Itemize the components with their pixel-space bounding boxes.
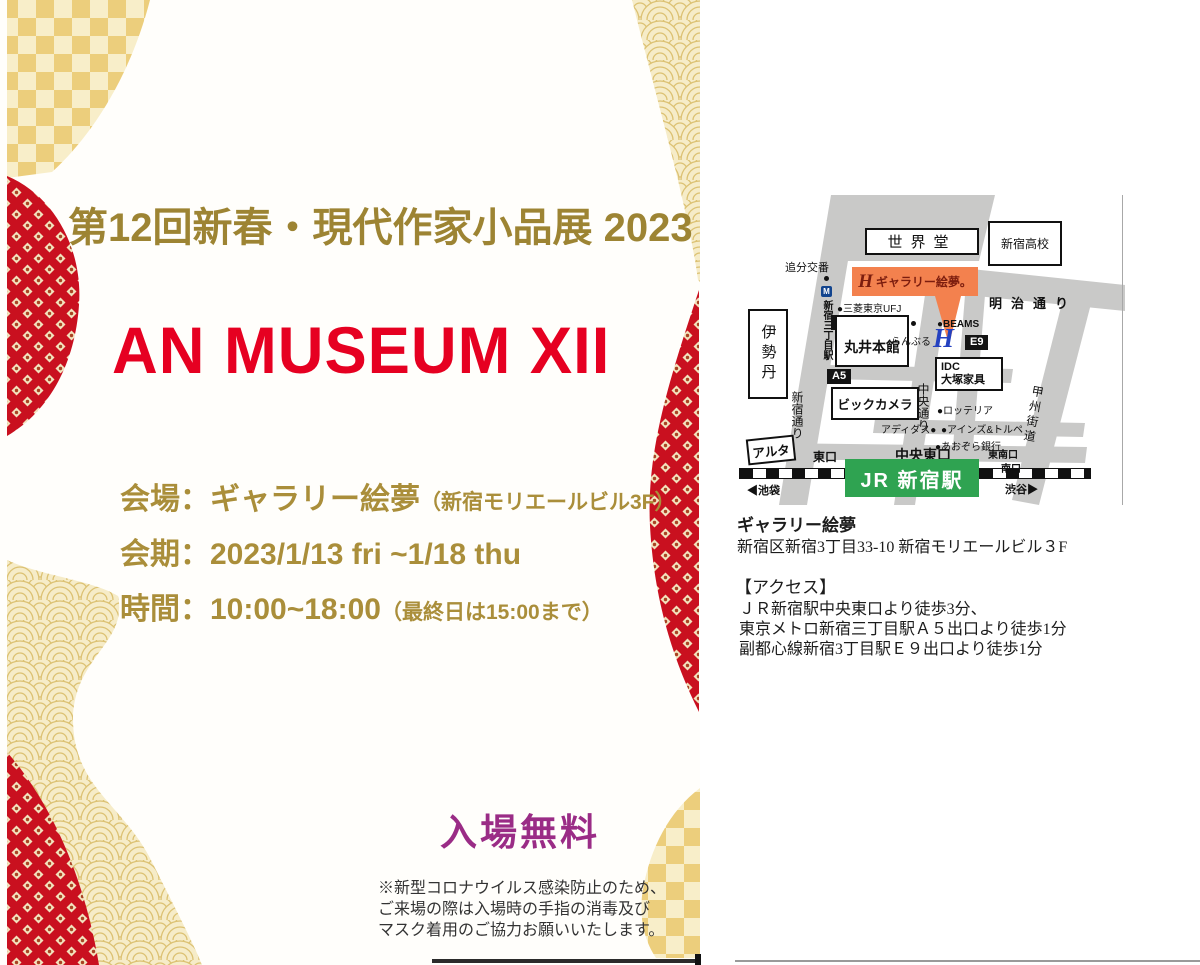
scan-edge-line <box>432 959 700 963</box>
railway-track-east <box>979 468 1091 479</box>
adidas-label: アディダス● <box>881 421 936 436</box>
main-title: AN MUSEUM XII <box>112 312 610 388</box>
ainz-tulpe-label: ●アインズ&トルペ <box>941 421 1023 436</box>
access-info-card: 世界堂 新宿高校 追分交番 H ギャラリー絵夢。 M 新宿三丁目駅 ●三菱東京U… <box>735 0 1200 965</box>
covid-notice: ※新型コロナウイルス感染防止のため、 ご来場の際は入場時の手指の消毒及び マスク… <box>378 878 666 941</box>
ranburu-dot <box>911 321 916 326</box>
building-shinjuku-highschool: 新宿高校 <box>988 221 1062 266</box>
venue-line: 会場：ギャラリー絵夢（新宿モリエールビル3F） <box>120 474 676 518</box>
railway-track-west <box>739 468 845 479</box>
hours-note: （最終日は15:00まで） <box>381 601 603 624</box>
idc-line2: 大塚家具 <box>941 374 985 387</box>
building-isetan: 伊勢丹 <box>748 309 788 399</box>
gallery-emu-map-logo: H <box>933 325 954 352</box>
to-shibuya-label: 渋谷▶ <box>1005 481 1038 497</box>
free-admission-label: 入場無料 <box>440 802 600 856</box>
area-map: 世界堂 新宿高校 追分交番 H ギャラリー絵夢。 M 新宿三丁目駅 ●三菱東京U… <box>745 195 1125 505</box>
building-sekaido: 世界堂 <box>865 228 979 255</box>
south-exit-label: 南口 <box>1001 460 1021 475</box>
exhibition-title: 第12回新春・現代作家小品展 2023 <box>68 195 693 253</box>
covid-notice-line1: ※新型コロナウイルス感染防止のため、 <box>378 878 666 899</box>
jr-shinjuku-station: JR 新宿駅 <box>845 459 979 497</box>
shinjuku-dori-label: 新宿通り <box>789 391 806 439</box>
scanned-flyer-page: 第12回新春・現代作家小品展 2023 AN MUSEUM XII 会場：ギャラ… <box>0 0 1200 965</box>
east-exit-label: 東口 <box>813 448 837 465</box>
oiwake-koban-dot <box>824 276 829 281</box>
gallery-h-logo: H <box>858 272 873 291</box>
building-idc-otsuka: IDC 大塚家具 <box>935 357 1003 391</box>
to-ikebukuro-label: ◀池袋 <box>747 482 780 498</box>
building-alta: アルタ <box>746 435 796 466</box>
dates-line: 会期：2023/1/13 fri ~1/18 thu <box>120 529 521 573</box>
metro-icon: M <box>821 286 832 297</box>
mitsubishi-ufj-label: ●三菱東京UFJ <box>837 300 901 315</box>
idc-line1: IDC <box>941 361 960 374</box>
gallery-address: 新宿区新宿3丁目33-10 新宿モリエールビル３F <box>737 533 1067 557</box>
southeast-exit-label: 東南口 <box>988 446 1018 461</box>
gallery-emu-banner: H ギャラリー絵夢。 <box>852 267 978 296</box>
venue-note: （新宿モリエールビル3F） <box>420 491 676 514</box>
covid-notice-line2: ご来場の際は入場時の手指の消毒及び <box>378 899 666 920</box>
venue-label: 会場：ギャラリー絵夢 <box>120 483 420 516</box>
meiji-dori-label: 明治通り <box>989 293 1077 312</box>
building-bic-camera: ビックカメラ <box>831 387 919 420</box>
hours-value: 時間：10:00~18:00 <box>120 593 381 626</box>
access-line3: 副都心線新宿3丁目駅Ｅ９出口より徒歩1分 <box>739 635 1043 659</box>
map-edge-line <box>1122 195 1123 505</box>
ranburu-label: らんぶる <box>891 333 931 348</box>
scan-edge-tick <box>695 954 701 965</box>
exit-e9-badge: E9 <box>965 335 988 350</box>
metro-shinjuku3chome-station-label: 新宿三丁目駅 <box>819 300 834 360</box>
covid-notice-line3: マスク着用のご協力お願いいたします。 <box>378 920 666 941</box>
gallery-banner-text: ギャラリー絵夢。 <box>876 273 972 290</box>
scan-edge-line-right <box>735 960 1200 962</box>
oiwake-koban-label: 追分交番 <box>785 259 829 275</box>
exhibition-flyer: 第12回新春・現代作家小品展 2023 AN MUSEUM XII 会場：ギャラ… <box>0 0 700 965</box>
lotteria-label: ●ロッテリア <box>937 402 993 417</box>
hours-line: 時間：10:00~18:00（最終日は15:00まで） <box>120 584 603 628</box>
exit-a5-badge: A5 <box>827 369 851 384</box>
